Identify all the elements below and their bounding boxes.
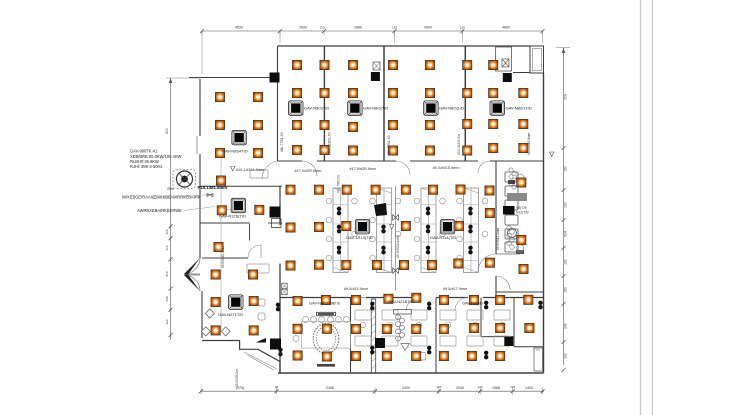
svg-text:#9.5/#012.1mm: #9.5/#012.1mm — [496, 228, 500, 250]
svg-text:2400: 2400 — [402, 386, 410, 390]
svg-text:(975): (975) — [236, 386, 244, 390]
svg-text:120: 120 — [319, 26, 324, 30]
svg-text:GAV-N271T/D: GAV-N271T/D — [218, 312, 243, 317]
svg-text:#9.5-#15.5.9m: #9.5-#15.5.9m — [457, 134, 461, 155]
svg-text:#X.5/#015.4mm: #X.5/#015.4mm — [396, 235, 400, 258]
svg-text:P18.1/M1.8mm: P18.1/M1.8mm — [198, 185, 228, 190]
svg-text:240: 240 — [564, 323, 568, 329]
svg-text:120: 120 — [510, 385, 515, 389]
svg-text:130: 130 — [392, 26, 397, 30]
svg-text:130: 130 — [564, 202, 568, 208]
svg-text:1968: 1968 — [492, 386, 500, 390]
svg-text:240: 240 — [165, 296, 169, 301]
svg-text:4500: 4500 — [424, 26, 432, 30]
svg-text:GAV-900TK #1: GAV-900TK #1 — [130, 148, 158, 153]
svg-text:GAV-N8G1T/D: GAV-N8G1T/D — [506, 106, 532, 111]
svg-text:#9.5/#015.8mm: #9.5/#015.8mm — [527, 133, 531, 155]
svg-text:150: 150 — [564, 287, 568, 293]
svg-text:GAV-1R14(T/D: GAV-1R14(T/D — [346, 235, 373, 240]
svg-text:324: 324 — [564, 231, 568, 237]
svg-text:150: 150 — [564, 166, 568, 172]
svg-text:GAV-N8S4T/D: GAV-N8S4T/D — [222, 149, 248, 154]
svg-text:600: 600 — [165, 128, 169, 134]
svg-text:#MM.1210/1.X0: #MM.1210/1.X0 — [328, 132, 332, 155]
svg-text:#9.5/#15.9mm: #9.5/#15.9mm — [344, 287, 368, 291]
svg-text:130: 130 — [564, 353, 568, 359]
svg-text:1T/B: 1T/B — [333, 302, 340, 306]
svg-text:GAV-N8C1T/B: GAV-N8C1T/B — [309, 301, 335, 306]
svg-text:N8(T/B: N8(T/B — [516, 206, 527, 210]
svg-text:2040: 2040 — [456, 386, 464, 390]
svg-text:2680: 2680 — [354, 26, 362, 30]
svg-text:120: 120 — [165, 229, 169, 234]
svg-text:#9.5/#17.9mm: #9.5/#17.9mm — [443, 287, 467, 291]
svg-text:N12(T/B: N12(T/B — [516, 211, 529, 215]
svg-text:#1T.9/#2R.6mm: #1T.9/#2R.6mm — [350, 167, 377, 171]
svg-text:#BL.T70/1.X0: #BL.T70/1.X0 — [387, 135, 391, 155]
svg-text:GAV-N12S(T/D: GAV-N12S(T/D — [219, 214, 246, 219]
svg-text:324: 324 — [165, 319, 169, 324]
svg-text:#1T.9/#2R.6mm: #1T.9/#2R.6mm — [295, 169, 322, 173]
svg-text:#9.5/#35.2m: #9.5/#35.2m — [235, 369, 239, 387]
svg-text:GAV-N8O(T/D: GAV-N8O(T/D — [304, 106, 329, 111]
svg-text:120: 120 — [478, 385, 483, 389]
svg-text:AWRBXEBAIRKBERWE: AWRBXEBAIRKBERWE — [137, 208, 182, 213]
svg-text:4680: 4680 — [502, 26, 510, 30]
svg-text:2408: 2408 — [326, 386, 334, 390]
svg-text:216: 216 — [165, 245, 169, 250]
svg-text:1400: 1400 — [525, 386, 533, 390]
svg-text:GAV-N8(I/D: GAV-N8(I/D — [462, 301, 483, 306]
svg-text:GAV-N21BT/D: GAV-N21BT/D — [388, 299, 414, 304]
svg-text:28: 28 — [275, 385, 279, 389]
svg-text:IWXEBGEIRAAXEIWHIBEAWRBXEBAIRK: IWXEBGEIRAAXEIWHIBEAWRBXEBAIRK — [122, 195, 201, 200]
svg-text:130: 130 — [460, 26, 465, 30]
svg-text:#BL.T70/1.X0: #BL.T70/1.X0 — [280, 132, 284, 152]
svg-text:120: 120 — [436, 385, 441, 389]
svg-text:GAV-N8O(T/D: GAV-N8O(T/D — [363, 106, 388, 111]
svg-text:#42.7/#0.9m: #42.7/#0.9m — [337, 175, 341, 193]
svg-text:#X.5/#015.9mm: #X.5/#015.9mm — [433, 166, 460, 170]
svg-text:704: 704 — [564, 94, 568, 100]
svg-text:190: 190 — [564, 259, 568, 265]
svg-text:4590: 4590 — [235, 26, 243, 30]
svg-text:RJHl: 380-3-50Hz: RJHl: 380-3-50Hz — [130, 164, 163, 169]
svg-text:GAV-N8O(L/D: GAV-N8O(L/D — [439, 106, 464, 111]
svg-text:GAV-N114(T/D: GAV-N114(T/D — [430, 235, 456, 240]
svg-text:XEB/BRE:00.0KW/100.4KW: XEB/BRE:00.0KW/100.4KW — [130, 154, 182, 159]
svg-text:910: 910 — [165, 271, 169, 276]
svg-text:2690: 2690 — [299, 26, 307, 30]
svg-text:#19.1/#211.0mm: #19.1/#211.0mm — [236, 168, 264, 172]
